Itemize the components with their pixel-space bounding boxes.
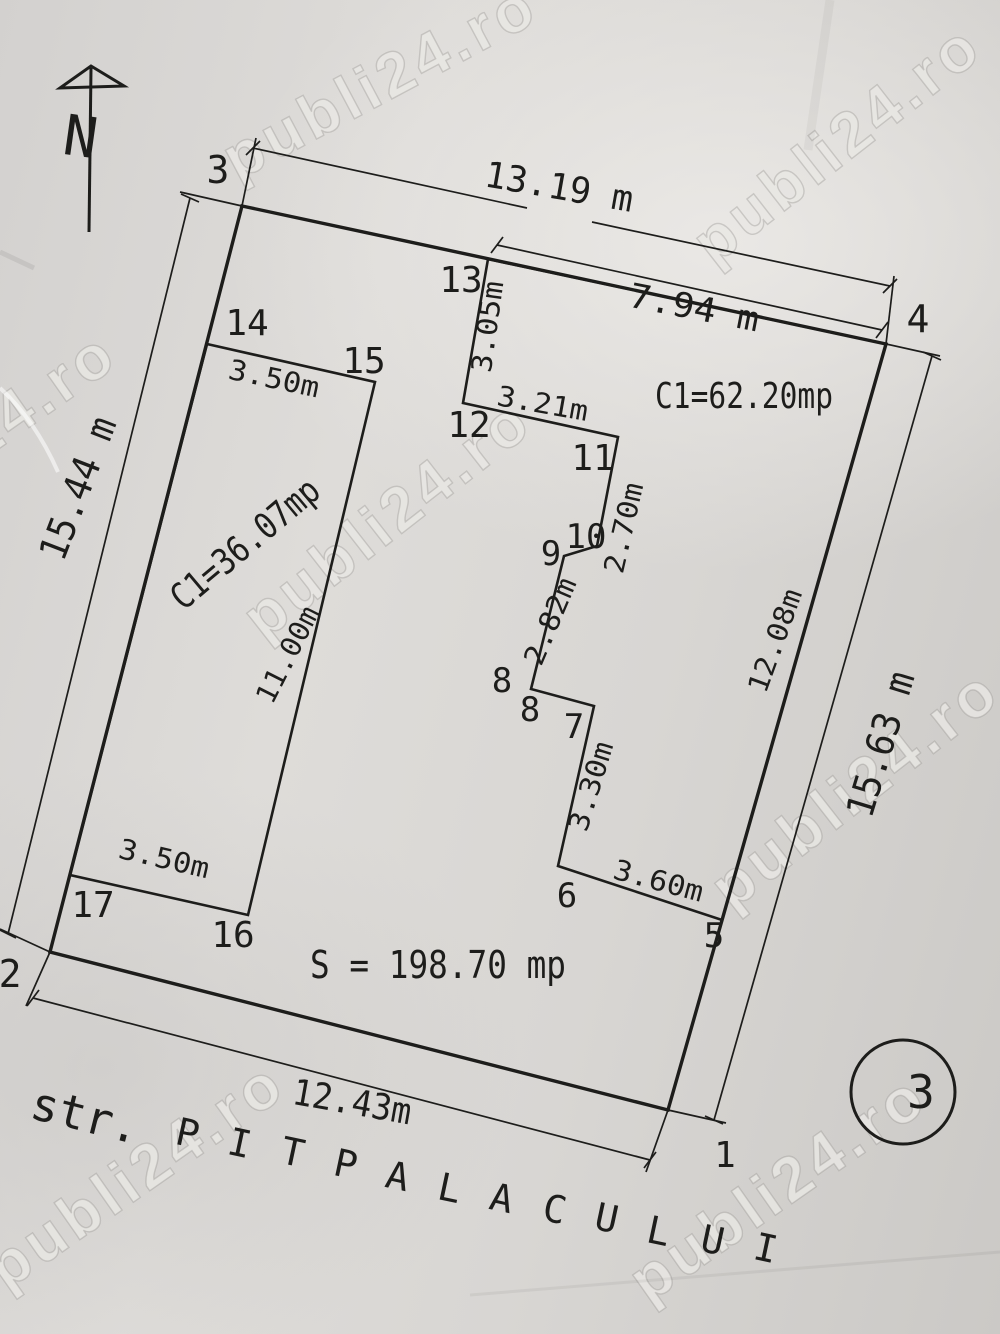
dim-tick	[644, 1152, 656, 1168]
north-letter: N	[59, 103, 101, 172]
labels-layer: N313.19 m137.94 m43.05mC1=62.20mp123.21m…	[0, 103, 935, 1272]
point-label-17: 17	[71, 885, 114, 926]
point-label-6: 6	[557, 876, 577, 916]
point-label-14: 14	[225, 303, 268, 344]
dim-2-82: 2.82m	[517, 572, 583, 670]
street-letter-7: C	[539, 1185, 571, 1233]
point-label-5: 5	[704, 916, 724, 956]
extension-line	[886, 344, 940, 356]
dim-12-08: 12.08m	[741, 584, 809, 697]
dim-7-94: 7.94 m	[625, 276, 762, 340]
corner-label-4: 4	[907, 297, 930, 341]
corner-label-2: 2	[0, 952, 21, 996]
point-label-9: 9	[541, 534, 561, 574]
street-letter-2: T	[277, 1128, 309, 1176]
extension-line	[26, 952, 50, 1006]
extension-line	[0, 929, 50, 952]
crease-mark	[0, 252, 34, 268]
point-label-16: 16	[211, 915, 254, 956]
street-letter-4: A	[382, 1152, 414, 1200]
corner-label-1: 1	[714, 1135, 736, 1176]
corner-label-3: 3	[207, 148, 230, 192]
dim-3-50-top: 3.50m	[226, 353, 323, 404]
dim-bottom: 12.43m	[289, 1072, 414, 1133]
street-letter-8: U	[591, 1194, 623, 1242]
point-label-8a: 8	[492, 661, 512, 701]
extension-line	[646, 1110, 668, 1172]
watermark-6: publi24.ro	[617, 1061, 940, 1316]
point-label-11: 11	[571, 438, 614, 479]
point-label-8b: 8	[520, 690, 540, 730]
dim-3-50-bottom: 3.50m	[116, 832, 213, 885]
watermark-1: publi24.ro	[680, 10, 995, 278]
street-letter-5: L	[434, 1164, 466, 1212]
street-letter-6: A	[486, 1174, 518, 1222]
dim-top: 13.19 m	[482, 154, 637, 220]
sheet-number: 3	[907, 1065, 935, 1119]
dim-tick	[883, 279, 897, 293]
point-label-15: 15	[342, 341, 385, 382]
street-letter-3: P	[330, 1140, 362, 1188]
scanned-cadastral-plan-page: publi24.ropubli24.ropubli24.ropubli24.ro…	[0, 0, 1000, 1334]
point-label-12: 12	[447, 405, 490, 446]
building-area-large: C1=62.20mp	[655, 376, 833, 417]
dim-left: 15.44 m	[30, 410, 125, 566]
total-area-label: S = 198.70 mp	[310, 943, 566, 987]
dim-line-left	[8, 198, 190, 934]
street-prefix: str.	[26, 1076, 147, 1155]
dim-tick	[491, 237, 503, 253]
point-label-7: 7	[564, 707, 584, 747]
cadastral-plan-drawing: publi24.ropubli24.ropubli24.ropubli24.ro…	[0, 0, 1000, 1334]
point-label-10: 10	[566, 517, 607, 557]
dim-3-30: 3.30m	[562, 737, 620, 835]
